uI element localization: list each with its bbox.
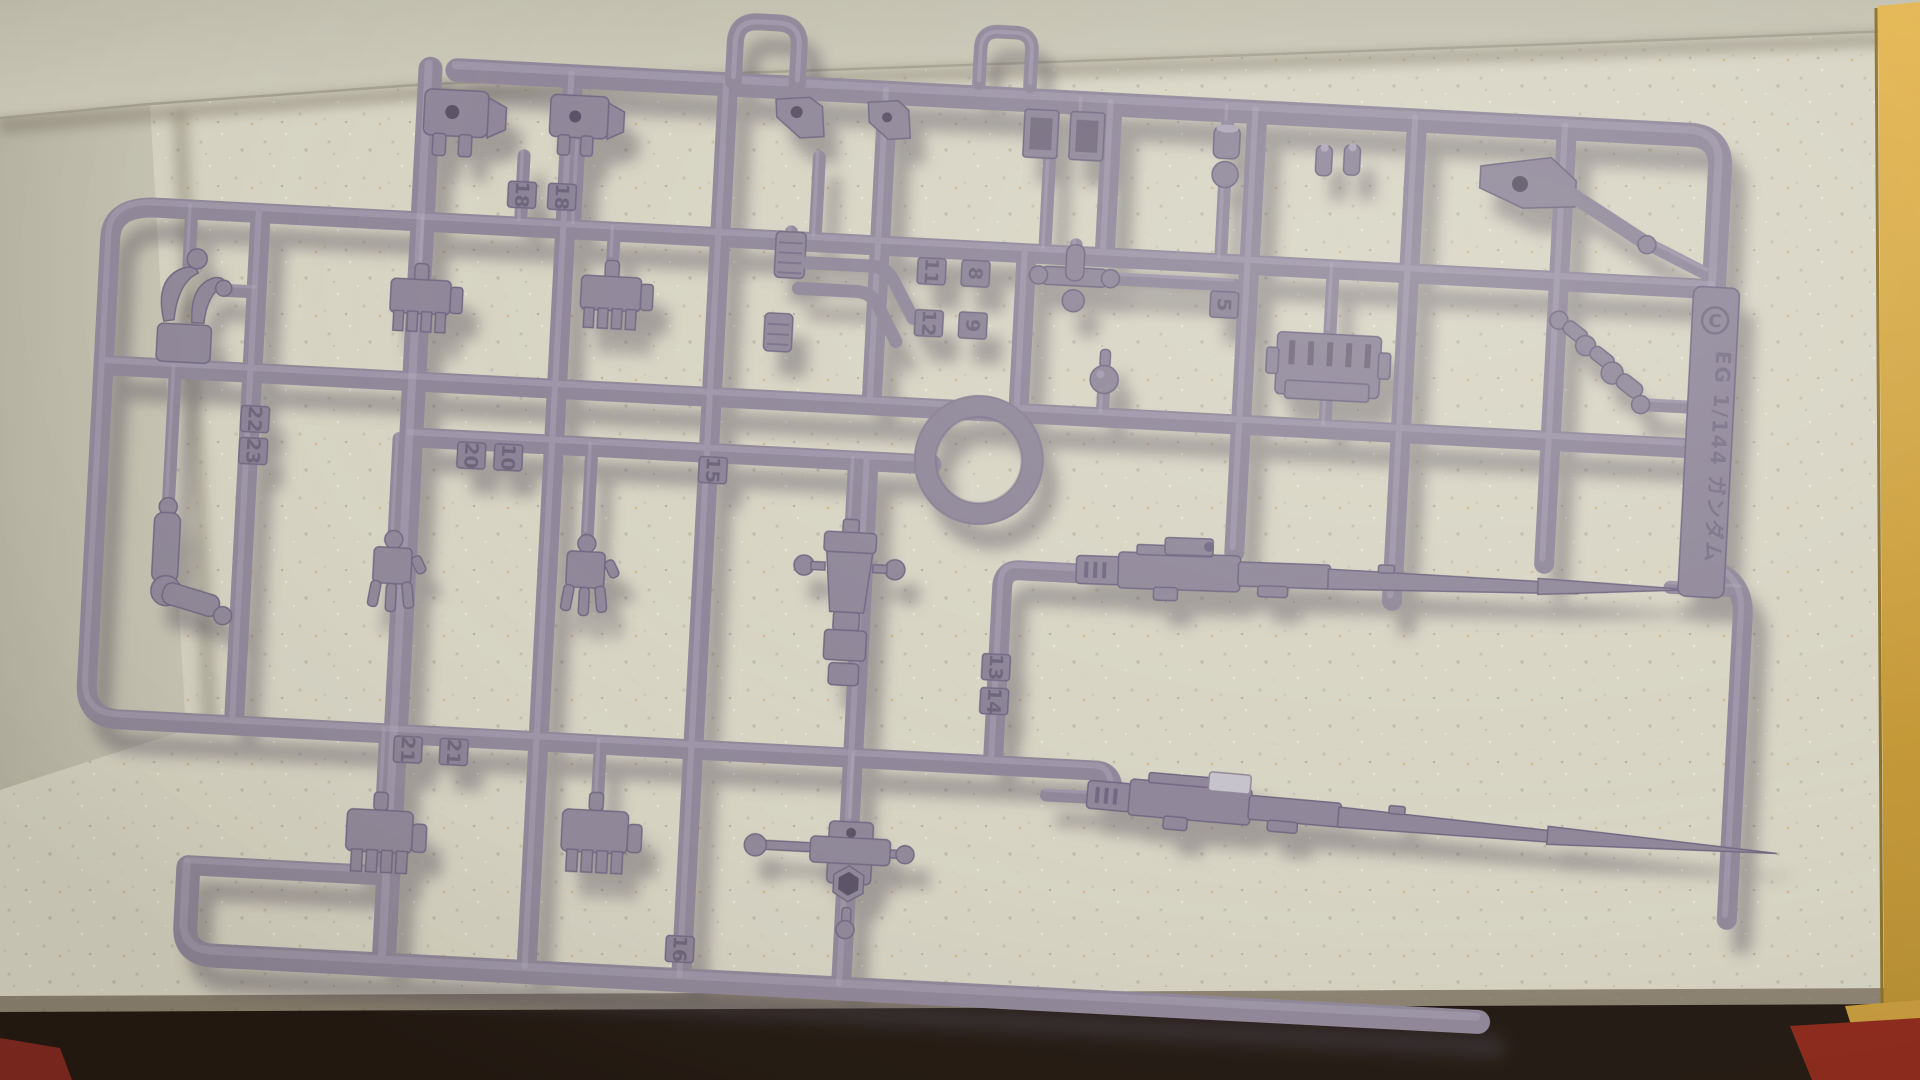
tag-number: 11 (919, 257, 942, 285)
part-number-tag: 10 (494, 443, 523, 471)
tag-number: 16 (667, 935, 690, 963)
box-floor (0, 0, 1920, 1080)
part-number-tag: 13 (981, 653, 1010, 681)
bottom-right-red-corner (1790, 1018, 1920, 1080)
tag-number: 22 (243, 405, 266, 433)
part-number-tag: 5 (1210, 291, 1239, 318)
photo-canvas: 1818222320101511812952121131416 C EG 1/1… (0, 0, 1920, 1080)
tag-number: 13 (984, 653, 1007, 681)
part-number-tag: 20 (457, 442, 486, 470)
tag-number: 10 (496, 444, 519, 472)
part-knurled-grip-1 (774, 231, 806, 279)
part-number-tag: 16 (665, 935, 694, 963)
tag-number: 8 (964, 266, 987, 280)
part-number-tag: 14 (979, 687, 1008, 715)
tag-number: 14 (982, 687, 1005, 715)
part-number-tag: 21 (393, 736, 422, 764)
box-front-shadow-strip (0, 1004, 1920, 1080)
runner-letter: C (1708, 310, 1722, 332)
part-number-tag: 21 (439, 738, 468, 766)
part-slotted-box (1264, 331, 1391, 403)
part-number-tag: 11 (917, 257, 946, 285)
part-number-tag: 22 (240, 405, 269, 433)
part-number-tag: 18 (507, 181, 536, 209)
right-yellow-edge (1878, 2, 1920, 1012)
part-knurled-grip-2 (763, 313, 793, 352)
tag-number: 21 (441, 738, 464, 766)
tag-number: 5 (1212, 297, 1235, 311)
part-number-tag: 18 (547, 183, 576, 211)
part-number-tag: 15 (698, 456, 727, 484)
part-number-tag: 12 (914, 309, 943, 337)
tag-number: 18 (550, 183, 573, 211)
part-number-tag: 8 (961, 260, 990, 287)
tag-number: 18 (510, 181, 533, 209)
tag-number: 23 (241, 437, 264, 465)
tag-number: 20 (459, 442, 482, 470)
tag-number: 12 (917, 309, 940, 337)
tag-number: 15 (701, 456, 724, 484)
tag-number: 21 (396, 736, 419, 764)
part-number-tag: 23 (239, 437, 268, 465)
tag-number: 9 (961, 318, 984, 332)
part-cylinder-ball (1211, 124, 1240, 188)
part-number-tag: 9 (958, 312, 987, 339)
